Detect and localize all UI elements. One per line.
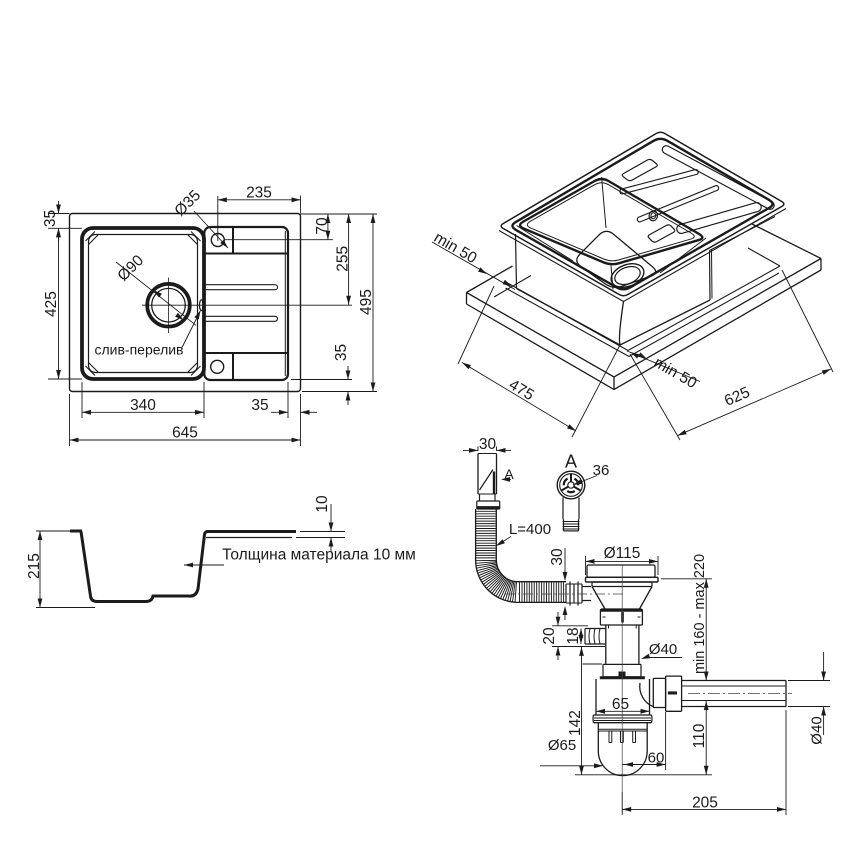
svg-text:65: 65 bbox=[612, 696, 629, 713]
svg-text:495: 495 bbox=[358, 289, 375, 315]
svg-text:min 160 - max 220: min 160 - max 220 bbox=[692, 554, 708, 674]
svg-text:20: 20 bbox=[541, 627, 558, 645]
svg-text:142: 142 bbox=[567, 710, 584, 736]
svg-text:слив-перелив: слив-перелив bbox=[95, 342, 184, 358]
svg-text:A: A bbox=[565, 452, 577, 472]
svg-text:10: 10 bbox=[314, 495, 331, 513]
svg-text:235: 235 bbox=[246, 185, 272, 202]
svg-text:Ø115: Ø115 bbox=[604, 545, 641, 562]
svg-text:215: 215 bbox=[26, 553, 43, 579]
svg-text:Ø40: Ø40 bbox=[649, 641, 677, 658]
svg-text:425: 425 bbox=[43, 291, 60, 317]
svg-text:35: 35 bbox=[333, 344, 350, 361]
svg-text:110: 110 bbox=[691, 723, 708, 748]
svg-text:205: 205 bbox=[692, 795, 718, 812]
svg-text:Толщина материала 10 мм: Толщина материала 10 мм bbox=[222, 547, 416, 564]
svg-text:L=400: L=400 bbox=[509, 521, 551, 538]
svg-text:35: 35 bbox=[42, 210, 59, 227]
svg-text:30: 30 bbox=[549, 548, 566, 566]
svg-text:Ø65: Ø65 bbox=[548, 737, 576, 754]
svg-text:645: 645 bbox=[172, 425, 198, 442]
svg-text:35: 35 bbox=[251, 397, 268, 414]
svg-text:18: 18 bbox=[565, 627, 582, 644]
svg-text:70: 70 bbox=[314, 217, 331, 235]
svg-text:255: 255 bbox=[334, 246, 351, 272]
svg-text:340: 340 bbox=[130, 397, 156, 414]
svg-text:30: 30 bbox=[479, 436, 497, 453]
svg-text:Ø40: Ø40 bbox=[809, 716, 826, 744]
